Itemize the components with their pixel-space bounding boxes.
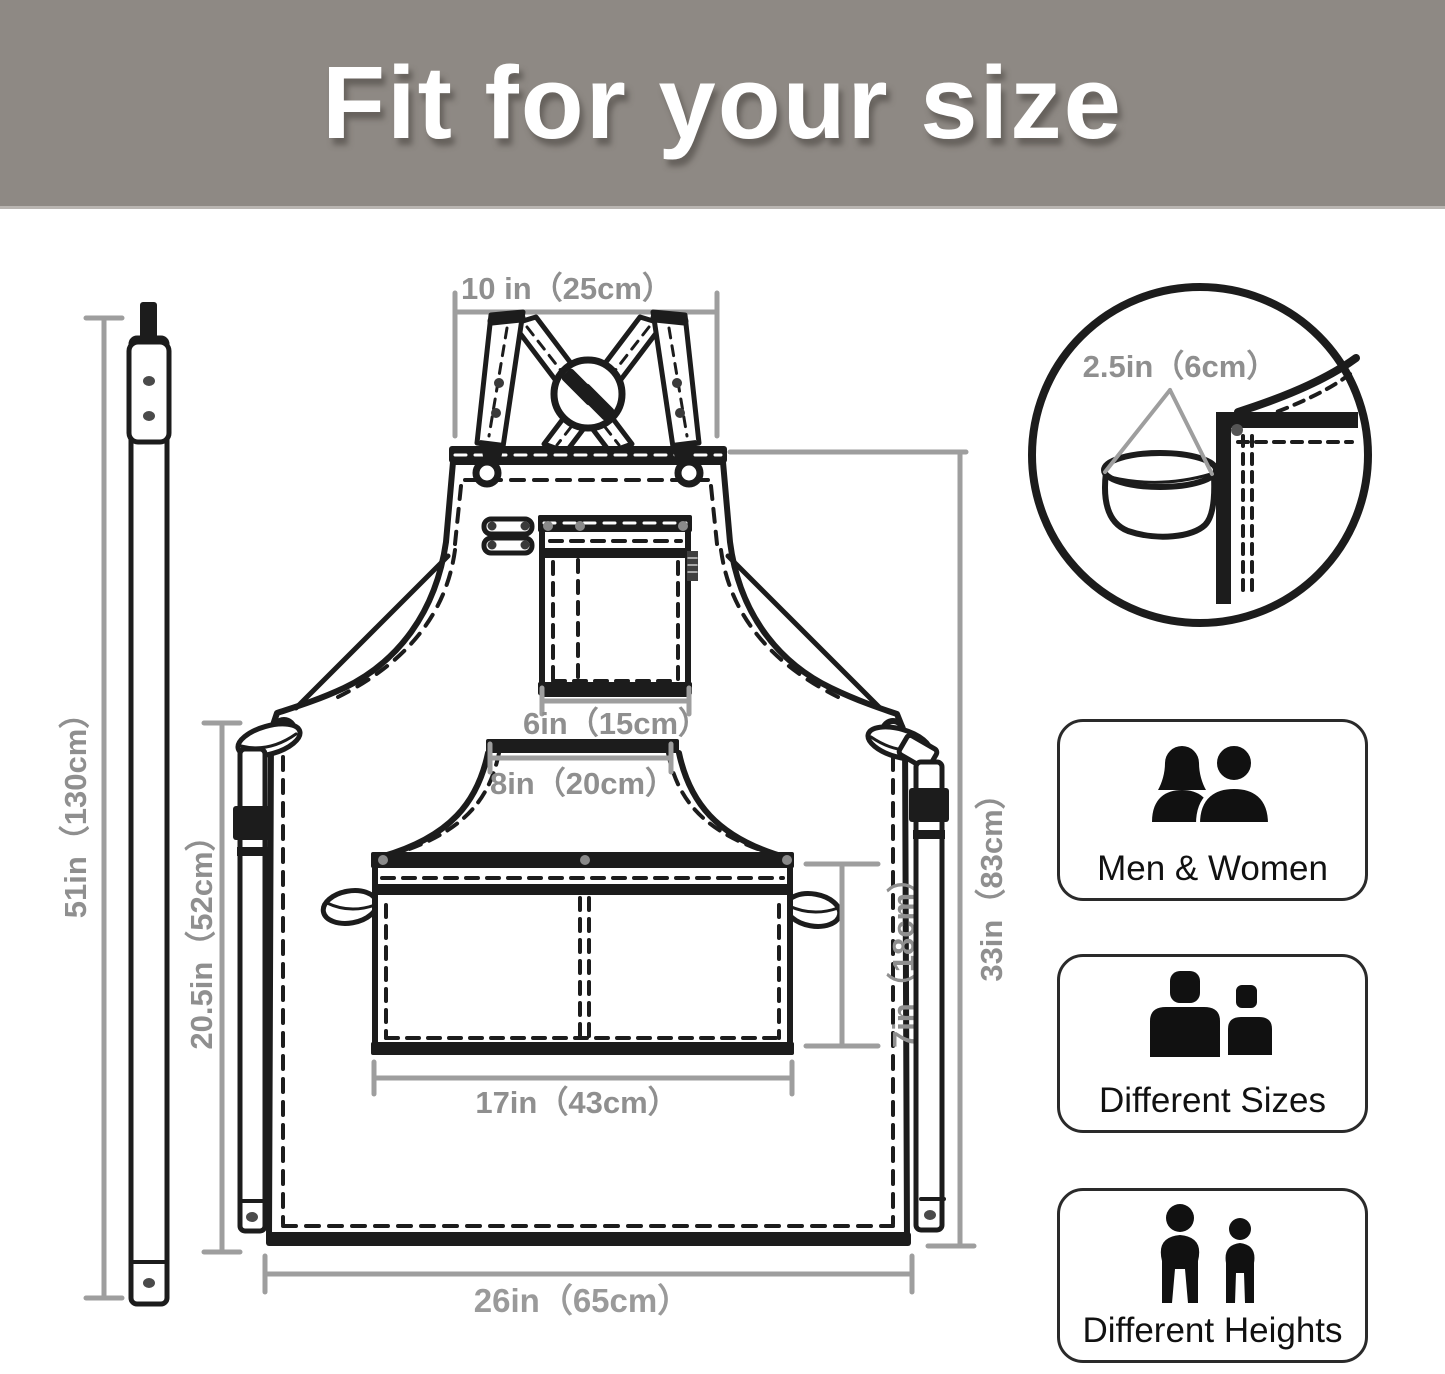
product-infographic: Fit for your size 51in（130cm） — [0, 0, 1445, 1374]
waist-strap-left — [233, 749, 272, 1231]
feature-label: Men & Women — [1097, 850, 1328, 889]
feature-card-men-women: Men & Women — [1057, 719, 1368, 901]
feature-card-different-sizes: Different Sizes — [1057, 954, 1368, 1133]
hem-band — [266, 1232, 911, 1246]
feature-label: Different Heights — [1082, 1312, 1342, 1351]
feature-label: Different Sizes — [1099, 1082, 1326, 1121]
different-sizes-icon — [1060, 969, 1365, 1073]
pen-slots — [484, 519, 532, 553]
dim-label-side-height: 20.5in（52cm） — [184, 820, 219, 1049]
front-pocket — [371, 852, 794, 1055]
apron-diagram: 51in（130cm） 10 in（25cm） — [0, 0, 1445, 1374]
men-women-icon — [1060, 734, 1365, 842]
dim-label-body-height: 33in（83cm） — [974, 778, 1009, 981]
dim-label-waist-top: 8in（20cm） — [490, 766, 676, 801]
strap-buckle-logo — [554, 360, 622, 428]
dim-label-neck-strap: 10 in（25cm） — [461, 271, 673, 306]
long-strap — [129, 302, 169, 1304]
detail-zoom-circle: 2.5in（6cm） — [1032, 287, 1368, 623]
detail-towel-loop — [1104, 453, 1216, 537]
feature-card-different-heights: Different Heights — [1057, 1188, 1368, 1363]
dim-label-front-pocket-width: 17in（43cm） — [475, 1085, 678, 1120]
dim-label-loop-width: 2.5in（6cm） — [1083, 349, 1278, 384]
dim-label-chest-pocket: 6in（15cm） — [523, 706, 709, 741]
different-heights-icon — [1060, 1203, 1365, 1315]
brand-tag — [687, 551, 698, 581]
dim-label-bottom-width: 26in（65cm） — [474, 1282, 690, 1319]
chest-pocket — [538, 515, 698, 695]
dim-label-strap-length: 51in（130cm） — [58, 698, 93, 919]
